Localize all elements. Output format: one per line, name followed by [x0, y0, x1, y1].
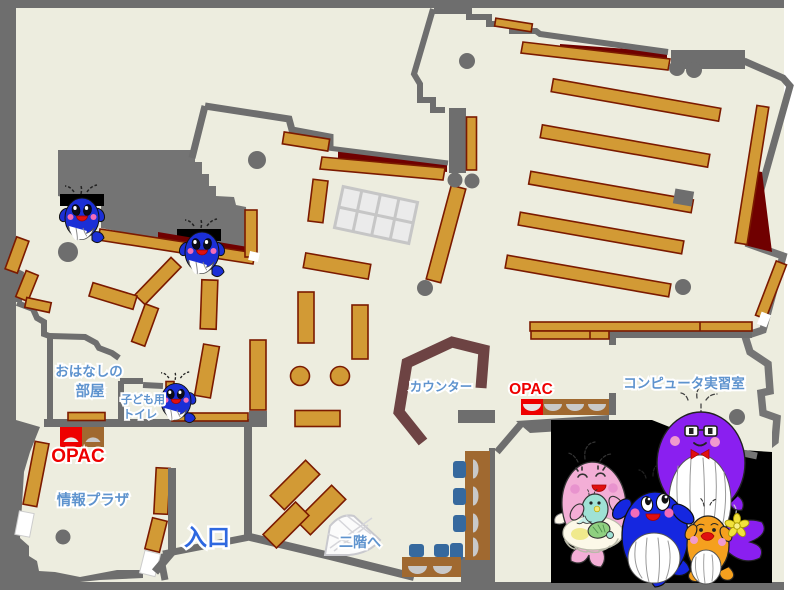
svg-text:二階へ: 二階へ: [339, 534, 381, 550]
svg-text:おはなしの: おはなしの: [55, 364, 123, 379]
svg-text:OPAC: OPAC: [509, 381, 553, 398]
svg-text:コンピュータ実習室: コンピュータ実習室: [623, 375, 745, 391]
svg-text:入口: 入口: [184, 524, 230, 550]
svg-text:OPAC: OPAC: [51, 446, 105, 467]
svg-text:部屋: 部屋: [76, 382, 105, 400]
svg-text:情報プラザ: 情報プラザ: [57, 491, 130, 509]
svg-text:カウンター: カウンター: [410, 379, 473, 394]
svg-text:トイレ: トイレ: [123, 408, 158, 421]
svg-text:子ども用: 子ども用: [121, 393, 165, 406]
